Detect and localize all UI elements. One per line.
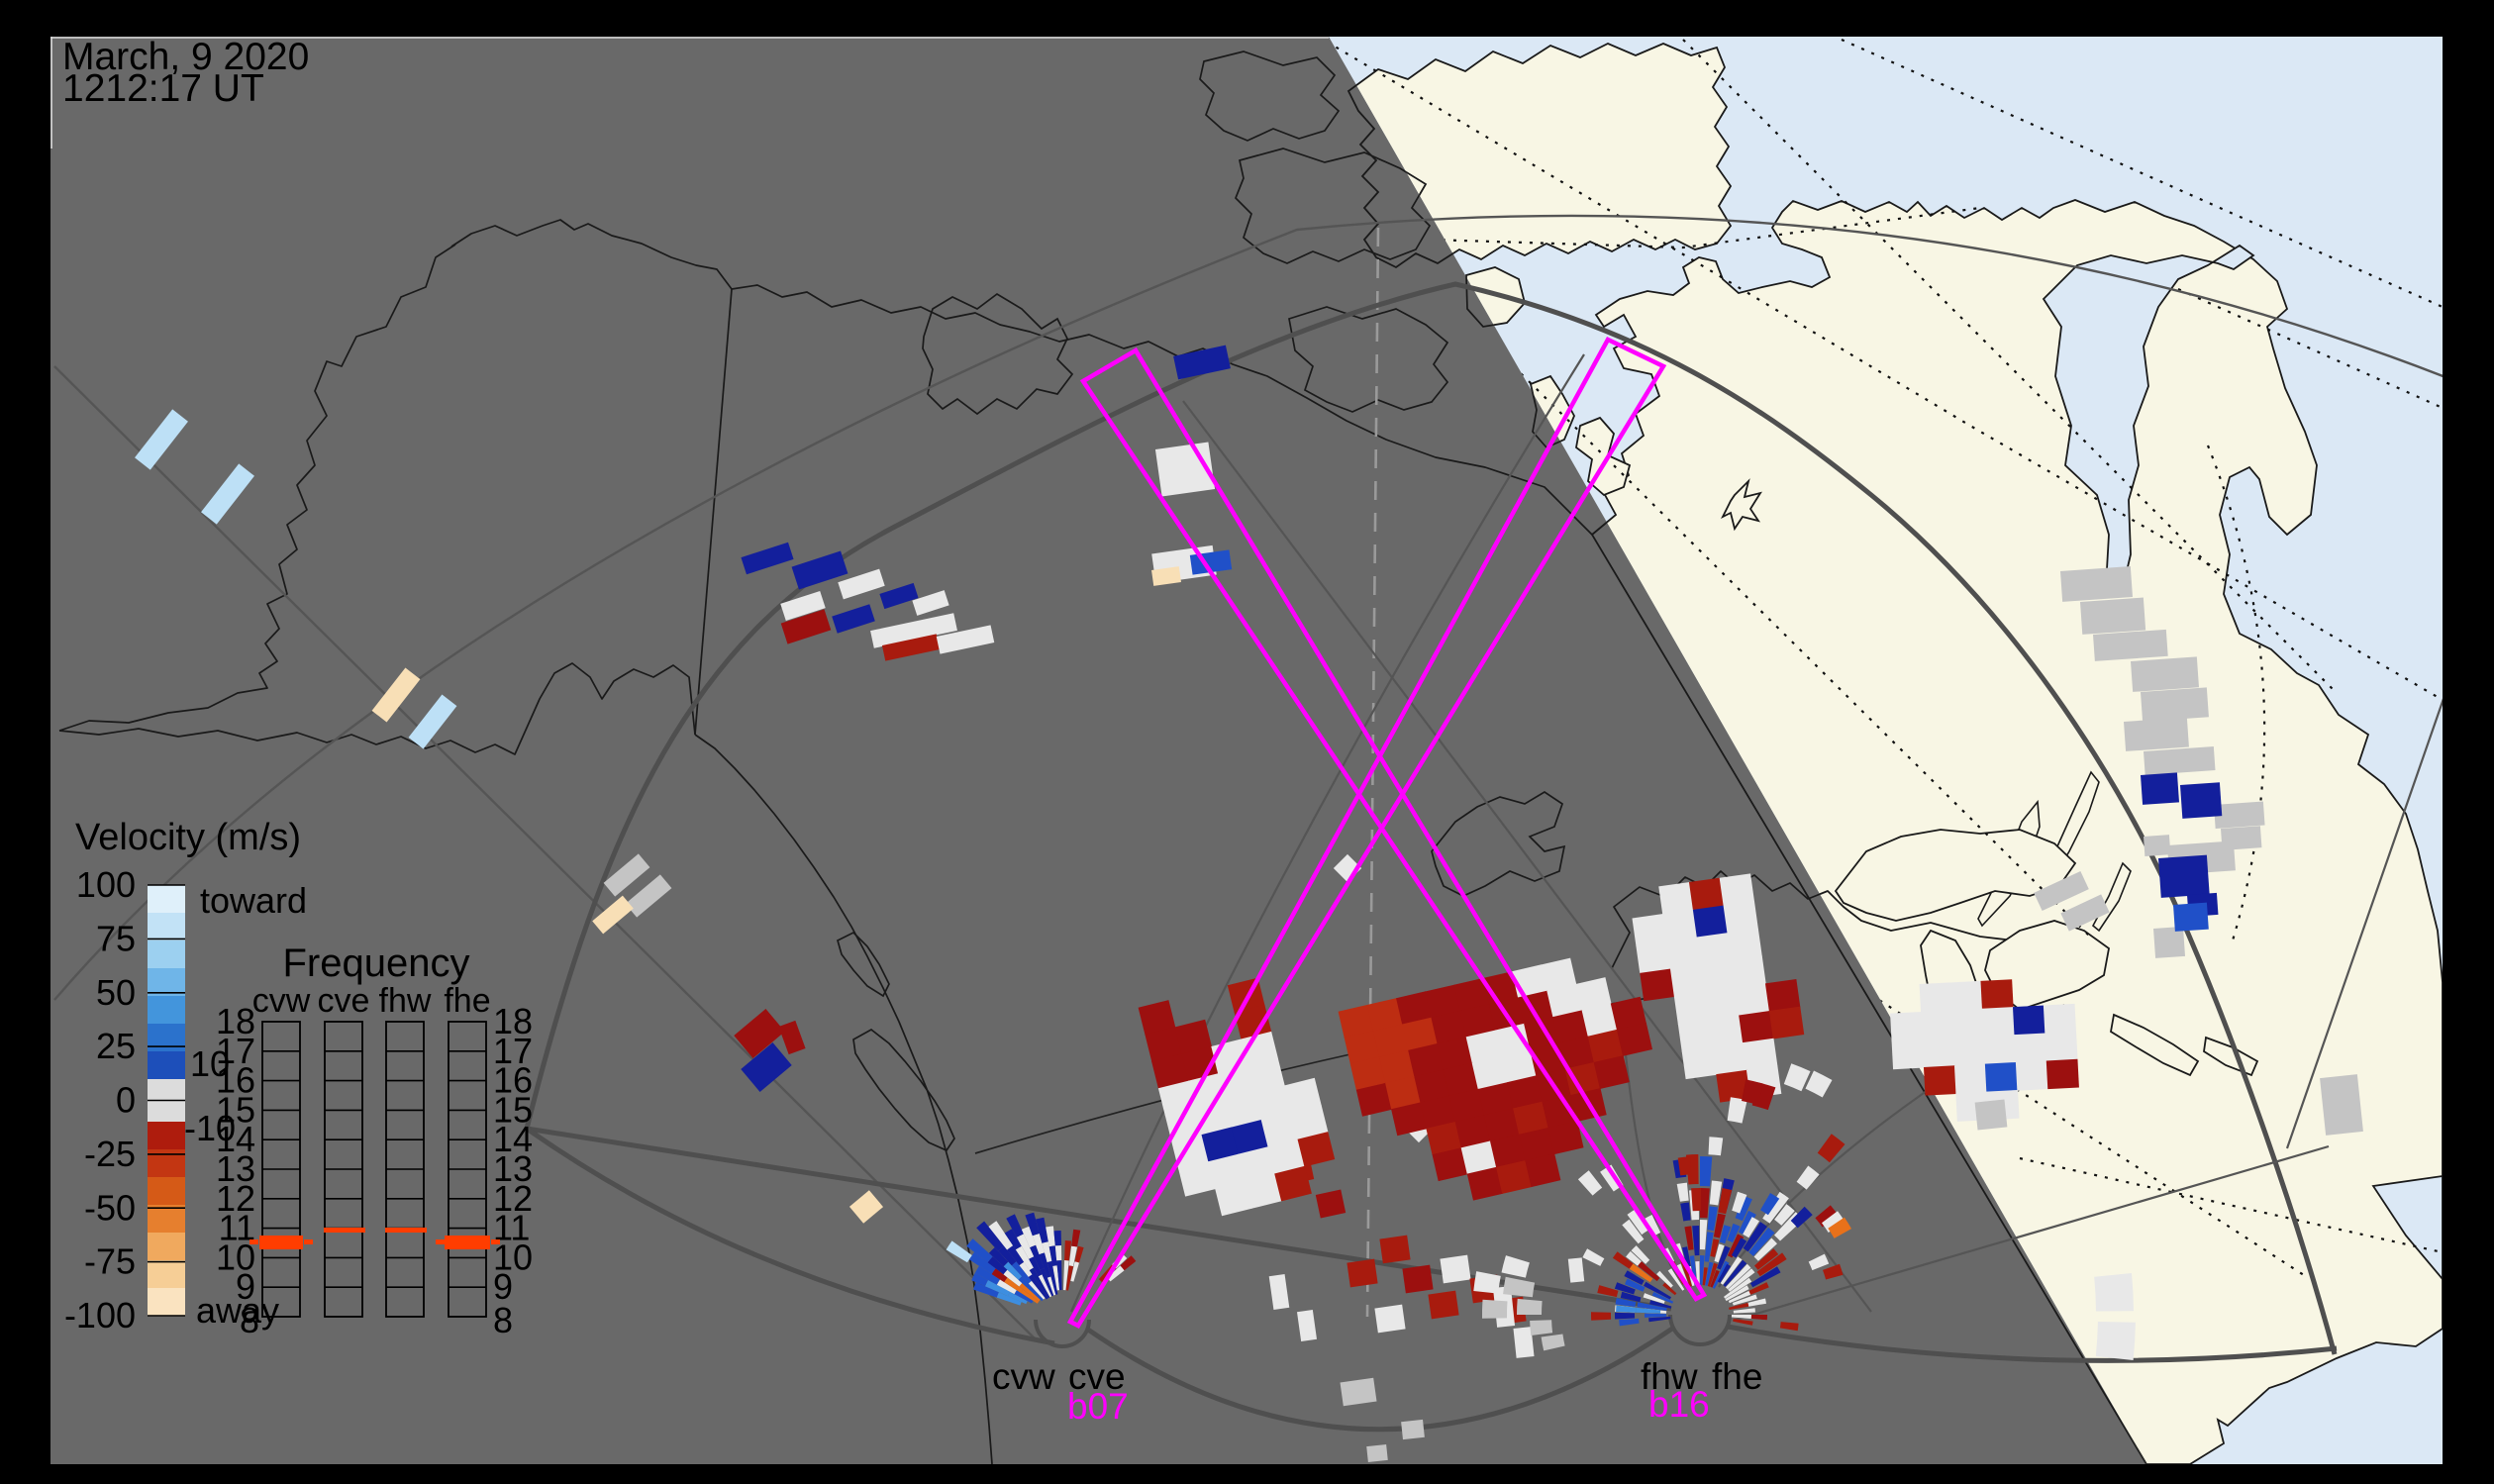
svg-text:fhw: fhw [379,982,432,1020]
svg-text:50: 50 [96,972,136,1013]
svg-text:toward: toward [200,880,307,921]
svg-text:-75: -75 [84,1241,136,1282]
svg-text:0: 0 [116,1080,136,1121]
svg-text:-25: -25 [84,1134,136,1174]
svg-text:10: 10 [190,1043,230,1084]
svg-text:fhe: fhe [444,982,490,1020]
svg-text:cve: cve [318,982,370,1020]
svg-text:cvw: cvw [252,982,311,1020]
svg-text:75: 75 [96,918,136,958]
svg-text:-10: -10 [184,1108,236,1148]
svg-text:100: 100 [76,864,136,905]
svg-text:-100: -100 [64,1295,136,1336]
svg-text:1212:17 UT: 1212:17 UT [62,67,264,110]
svg-text:b07: b07 [1067,1386,1129,1427]
svg-text:b16: b16 [1648,1384,1710,1425]
svg-text:8: 8 [240,1300,259,1340]
svg-text:8: 8 [493,1300,513,1340]
svg-text:25: 25 [96,1026,136,1066]
svg-text:-50: -50 [84,1187,136,1228]
svg-text:fhe: fhe [1712,1356,1762,1397]
svg-text:Velocity (m/s): Velocity (m/s) [75,817,301,858]
svg-text:Frequency: Frequency [283,941,470,985]
svg-text:cvw: cvw [992,1356,1055,1397]
